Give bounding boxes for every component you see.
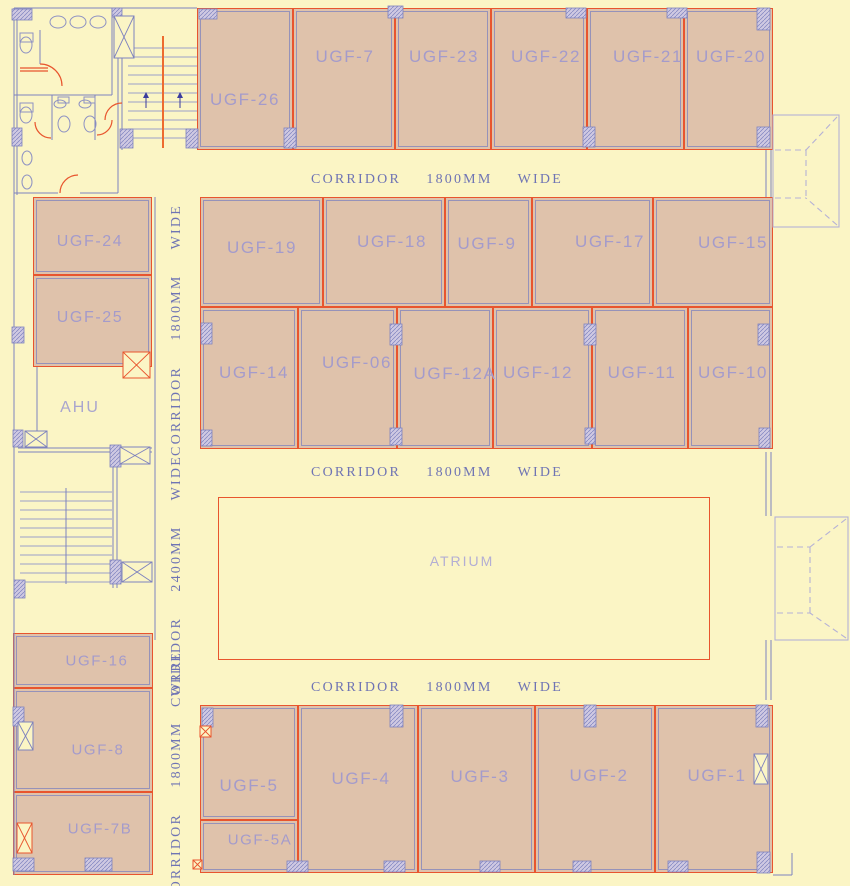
room-label-ugf-1: UGF-1 bbox=[688, 766, 747, 786]
room-label-ugf-20: UGF-20 bbox=[696, 47, 766, 67]
room-label-ugf-12a: UGF-12A bbox=[414, 364, 497, 384]
room-label-ugf-12: UGF-12 bbox=[503, 363, 573, 383]
room-ugf-2 bbox=[535, 705, 655, 873]
room-label-ugf-7: UGF-7 bbox=[316, 47, 375, 67]
corridor-top-label: CORRIDOR 1800MM WIDE bbox=[311, 172, 563, 188]
atrium-label: ATRIUM bbox=[430, 553, 495, 569]
room-ugf-1 bbox=[655, 705, 773, 873]
room-ugf-17 bbox=[532, 197, 653, 307]
room-label-ugf-14: UGF-14 bbox=[219, 363, 289, 383]
room-label-ugf-25: UGF-25 bbox=[57, 309, 124, 327]
room-label-ugf-21: UGF-21 bbox=[613, 47, 683, 67]
room-label-ugf-26: UGF-26 bbox=[210, 90, 280, 110]
room-label-ugf-19: UGF-19 bbox=[227, 238, 297, 258]
room-ugf-06 bbox=[298, 307, 397, 449]
room-ugf-23 bbox=[395, 8, 491, 150]
ahu-label: AHU bbox=[60, 399, 100, 417]
room-label-ugf-2: UGF-2 bbox=[570, 766, 629, 786]
room-ugf-26 bbox=[197, 8, 293, 150]
room-ugf-5 bbox=[200, 705, 298, 820]
room-label-ugf-06: UGF-06 bbox=[322, 353, 392, 373]
atrium-outline bbox=[218, 497, 710, 660]
room-ugf-3 bbox=[418, 705, 535, 873]
room-label-ugf-3: UGF-3 bbox=[451, 767, 510, 787]
room-label-ugf-24: UGF-24 bbox=[57, 233, 124, 251]
room-ugf-22 bbox=[491, 8, 587, 150]
room-label-ugf-23: UGF-23 bbox=[409, 47, 479, 67]
room-ugf-21 bbox=[587, 8, 684, 150]
room-label-ugf-16: UGF-16 bbox=[66, 653, 129, 670]
room-label-ugf-8: UGF-8 bbox=[72, 742, 125, 759]
orange-partitions bbox=[20, 64, 122, 193]
room-ugf-4 bbox=[298, 705, 418, 873]
corridor-left-upper-label: CORRIDOR 1800MM WIDE bbox=[169, 204, 185, 456]
room-label-ugf-10: UGF-10 bbox=[698, 363, 768, 383]
room-label-ugf-7b: UGF-7B bbox=[68, 821, 133, 838]
corridor-bottom-label: CORRIDOR 1800MM WIDE bbox=[311, 680, 563, 696]
corridor-middle-label: CORRIDOR 1800MM WIDE bbox=[311, 465, 563, 481]
room-label-ugf-9: UGF-9 bbox=[458, 234, 517, 254]
room-ugf-20 bbox=[684, 8, 773, 150]
room-label-ugf-18: UGF-18 bbox=[357, 232, 427, 252]
floor-plan-canvas: UGF-26UGF-7UGF-23UGF-22UGF-21UGF-20UGF-1… bbox=[0, 0, 850, 886]
room-label-ugf-15: UGF-15 bbox=[698, 233, 768, 253]
room-label-ugf-22: UGF-22 bbox=[511, 47, 581, 67]
room-label-ugf-5: UGF-5 bbox=[220, 776, 279, 796]
room-label-ugf-11: UGF-11 bbox=[608, 363, 677, 383]
toilet-fixtures bbox=[20, 16, 106, 189]
room-ugf-8 bbox=[13, 688, 153, 792]
entrance-canopies bbox=[773, 115, 848, 640]
room-label-ugf-17: UGF-17 bbox=[575, 232, 645, 252]
room-ugf-7 bbox=[293, 8, 395, 150]
corridor-left-lower-label: CORRIDOR 1800MM WIDE bbox=[169, 651, 185, 886]
room-label-ugf-4: UGF-4 bbox=[332, 769, 391, 789]
room-ugf-18 bbox=[323, 197, 445, 307]
room-label-ugf-5a: UGF-5A bbox=[228, 832, 293, 849]
